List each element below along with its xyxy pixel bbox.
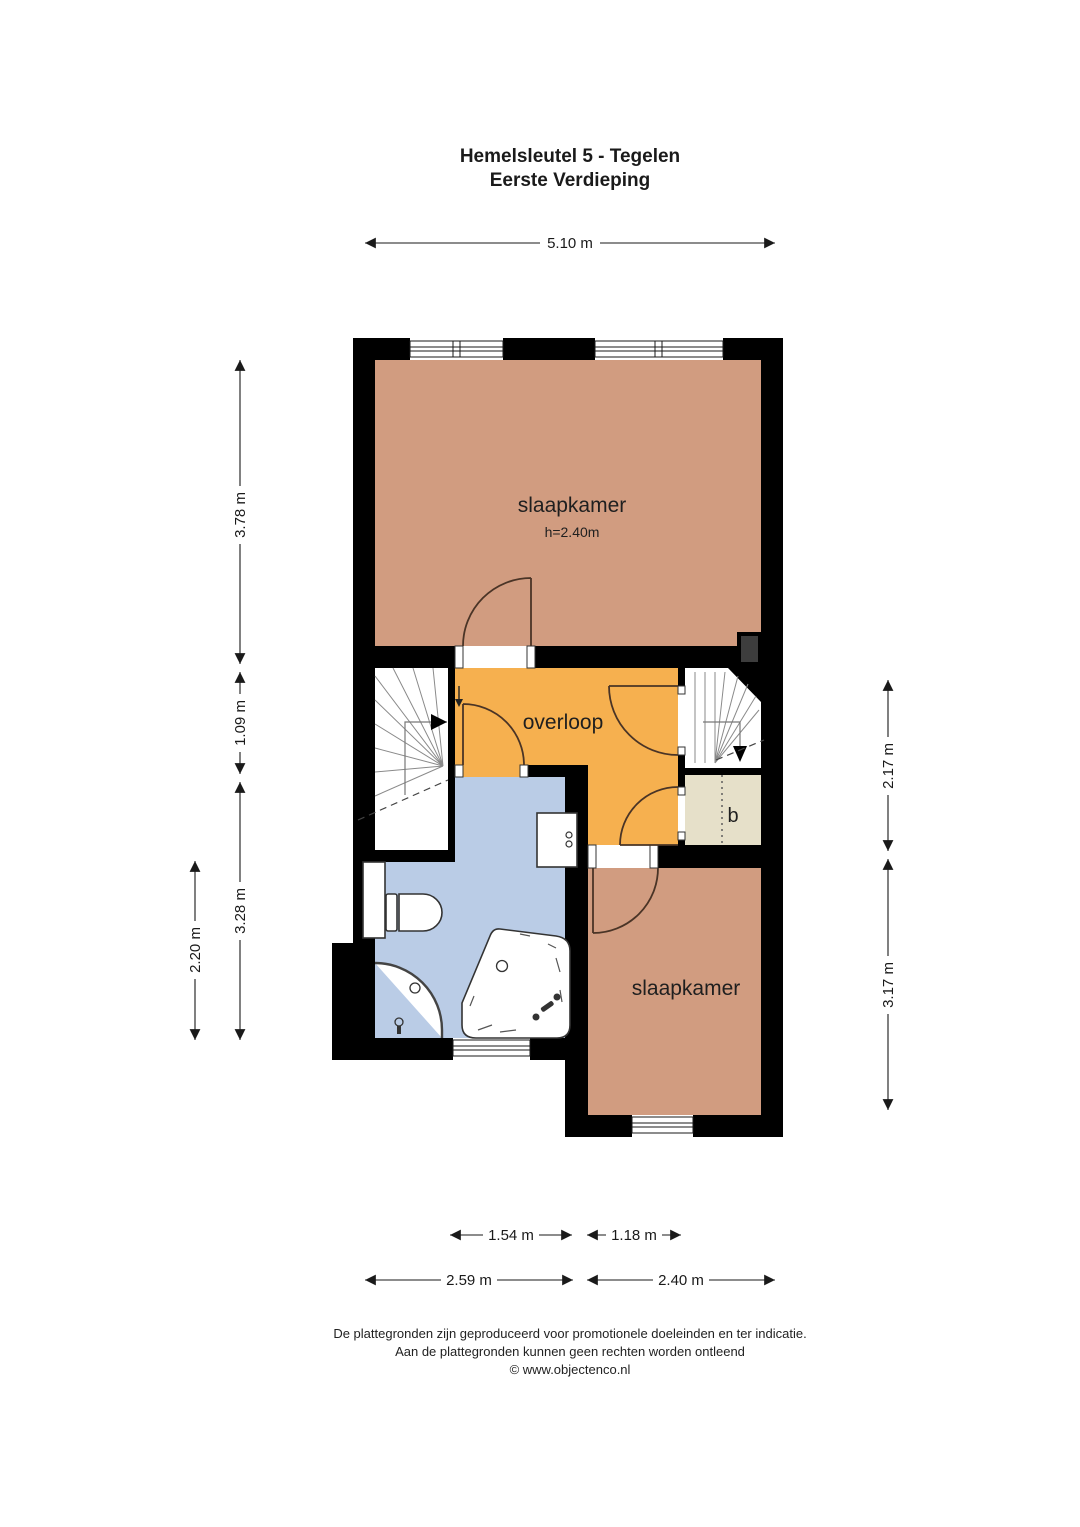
label-bedroom-top-height: h=2.40m (545, 524, 600, 540)
footer-disclaimer: De plattegronden zijn geproduceerd voor … (333, 1326, 806, 1377)
dim-bottom-118: 1.18 m (587, 1226, 681, 1244)
dim-left-328: 3.28 m (231, 782, 249, 1040)
svg-text:2.40 m: 2.40 m (658, 1272, 704, 1289)
footer-line-1: De plattegronden zijn geproduceerd voor … (333, 1326, 806, 1341)
stair-arrow-icon-right (733, 746, 747, 762)
dim-bottom-240: 2.40 m (587, 1271, 775, 1289)
svg-text:3.78 m: 3.78 m (232, 492, 249, 538)
toilet-icon (386, 894, 442, 931)
dim-top-width: 5.10 m (365, 234, 775, 252)
title-line-2: Eerste Verdieping (490, 170, 651, 191)
window-icon-top-right (595, 341, 723, 357)
label-landing: overloop (523, 711, 604, 734)
svg-text:1.18 m: 1.18 m (611, 1227, 657, 1244)
svg-text:3.17 m: 3.17 m (880, 962, 897, 1008)
label-closet: b (727, 805, 738, 827)
svg-text:1.09 m: 1.09 m (232, 700, 249, 746)
svg-text:1.54 m: 1.54 m (488, 1227, 534, 1244)
footer-line-3: © www.objectenco.nl (510, 1362, 631, 1377)
dim-left-inner-220: 2.20 m (186, 861, 204, 1040)
plan-title: Hemelsleutel 5 - Tegelen Eerste Verdiepi… (460, 146, 680, 191)
radiator-icon (363, 862, 385, 938)
sink-icon (537, 813, 577, 867)
svg-text:2.17 m: 2.17 m (880, 743, 897, 789)
dim-bottom-259: 2.59 m (365, 1271, 573, 1289)
svg-text:2.59 m: 2.59 m (446, 1272, 492, 1289)
flue (741, 636, 758, 662)
dim-right-217: 2.17 m (879, 680, 897, 851)
floorplan-svg: Hemelsleutel 5 - Tegelen Eerste Verdiepi… (0, 0, 1080, 1527)
svg-text:3.28 m: 3.28 m (232, 888, 249, 934)
room-closet (685, 775, 761, 845)
dim-left-109: 1.09 m (231, 672, 249, 774)
svg-text:5.10 m: 5.10 m (547, 235, 593, 252)
window-icon-bedroom-bottom (632, 1117, 693, 1133)
footer-line-2: Aan de plattegronden kunnen geen rechten… (395, 1344, 745, 1359)
dim-right-317: 3.17 m (879, 859, 897, 1110)
title-line-1: Hemelsleutel 5 - Tegelen (460, 146, 680, 167)
dim-bottom-154: 1.54 m (450, 1226, 572, 1244)
label-bedroom-top: slaapkamer (518, 494, 627, 517)
window-icon-bathroom (453, 1040, 530, 1056)
window-icon-top-left (410, 341, 503, 357)
svg-text:2.20 m: 2.20 m (187, 927, 204, 973)
dim-left-378: 3.78 m (231, 360, 249, 664)
label-bedroom-bottom: slaapkamer (632, 977, 741, 1000)
floorplan-canvas: Hemelsleutel 5 - Tegelen Eerste Verdiepi… (0, 0, 1080, 1527)
